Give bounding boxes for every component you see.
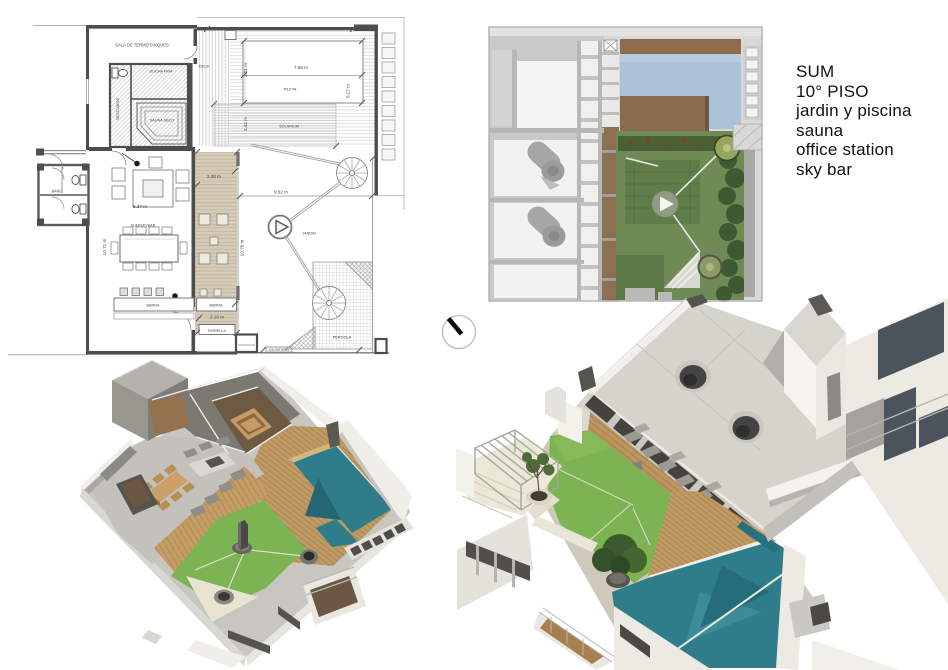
svg-text:DECK: DECK: [199, 65, 210, 69]
svg-text:SAUNA SECO: SAUNA SECO: [150, 119, 175, 123]
svg-text:5.37 m: 5.37 m: [133, 204, 147, 209]
svg-text:BAÑO: BAÑO: [52, 189, 63, 194]
svg-text:BARRA: BARRA: [209, 304, 223, 308]
svg-text:DUCHA FRIA: DUCHA FRIA: [150, 70, 173, 74]
svg-text:PILETA: PILETA: [284, 88, 297, 92]
svg-text:SUM/SKYBAR: SUM/SKYBAR: [131, 224, 156, 228]
svg-text:VESTUARIO: VESTUARIO: [116, 98, 120, 120]
svg-text:SALA DE TERMOTANQUES: SALA DE TERMOTANQUES: [115, 43, 169, 48]
svg-text:2.42 m: 2.42 m: [243, 117, 248, 131]
svg-text:PARRILLA: PARRILLA: [208, 329, 227, 333]
svg-text:JARDIN: JARDIN: [302, 232, 316, 236]
svg-text:7.88 m: 7.88 m: [294, 65, 308, 70]
svg-text:2.30 m: 2.30 m: [207, 174, 221, 179]
svg-text:3.01 m: 3.01 m: [243, 63, 248, 77]
svg-text:10.76 m: 10.76 m: [240, 240, 245, 257]
svg-text:PERGOLA: PERGOLA: [333, 336, 352, 340]
svg-text:10.71 m: 10.71 m: [102, 239, 107, 256]
svg-text:SOLARIUM: SOLARIUM: [279, 125, 299, 129]
svg-text:ESCRITORIO: ESCRITORIO: [269, 348, 289, 352]
svg-text:2.16 m: 2.16 m: [210, 315, 224, 320]
svg-text:5.27 m: 5.27 m: [346, 84, 351, 98]
svg-text:9.52 m: 9.52 m: [274, 190, 288, 195]
svg-text:BARRA: BARRA: [146, 304, 160, 308]
